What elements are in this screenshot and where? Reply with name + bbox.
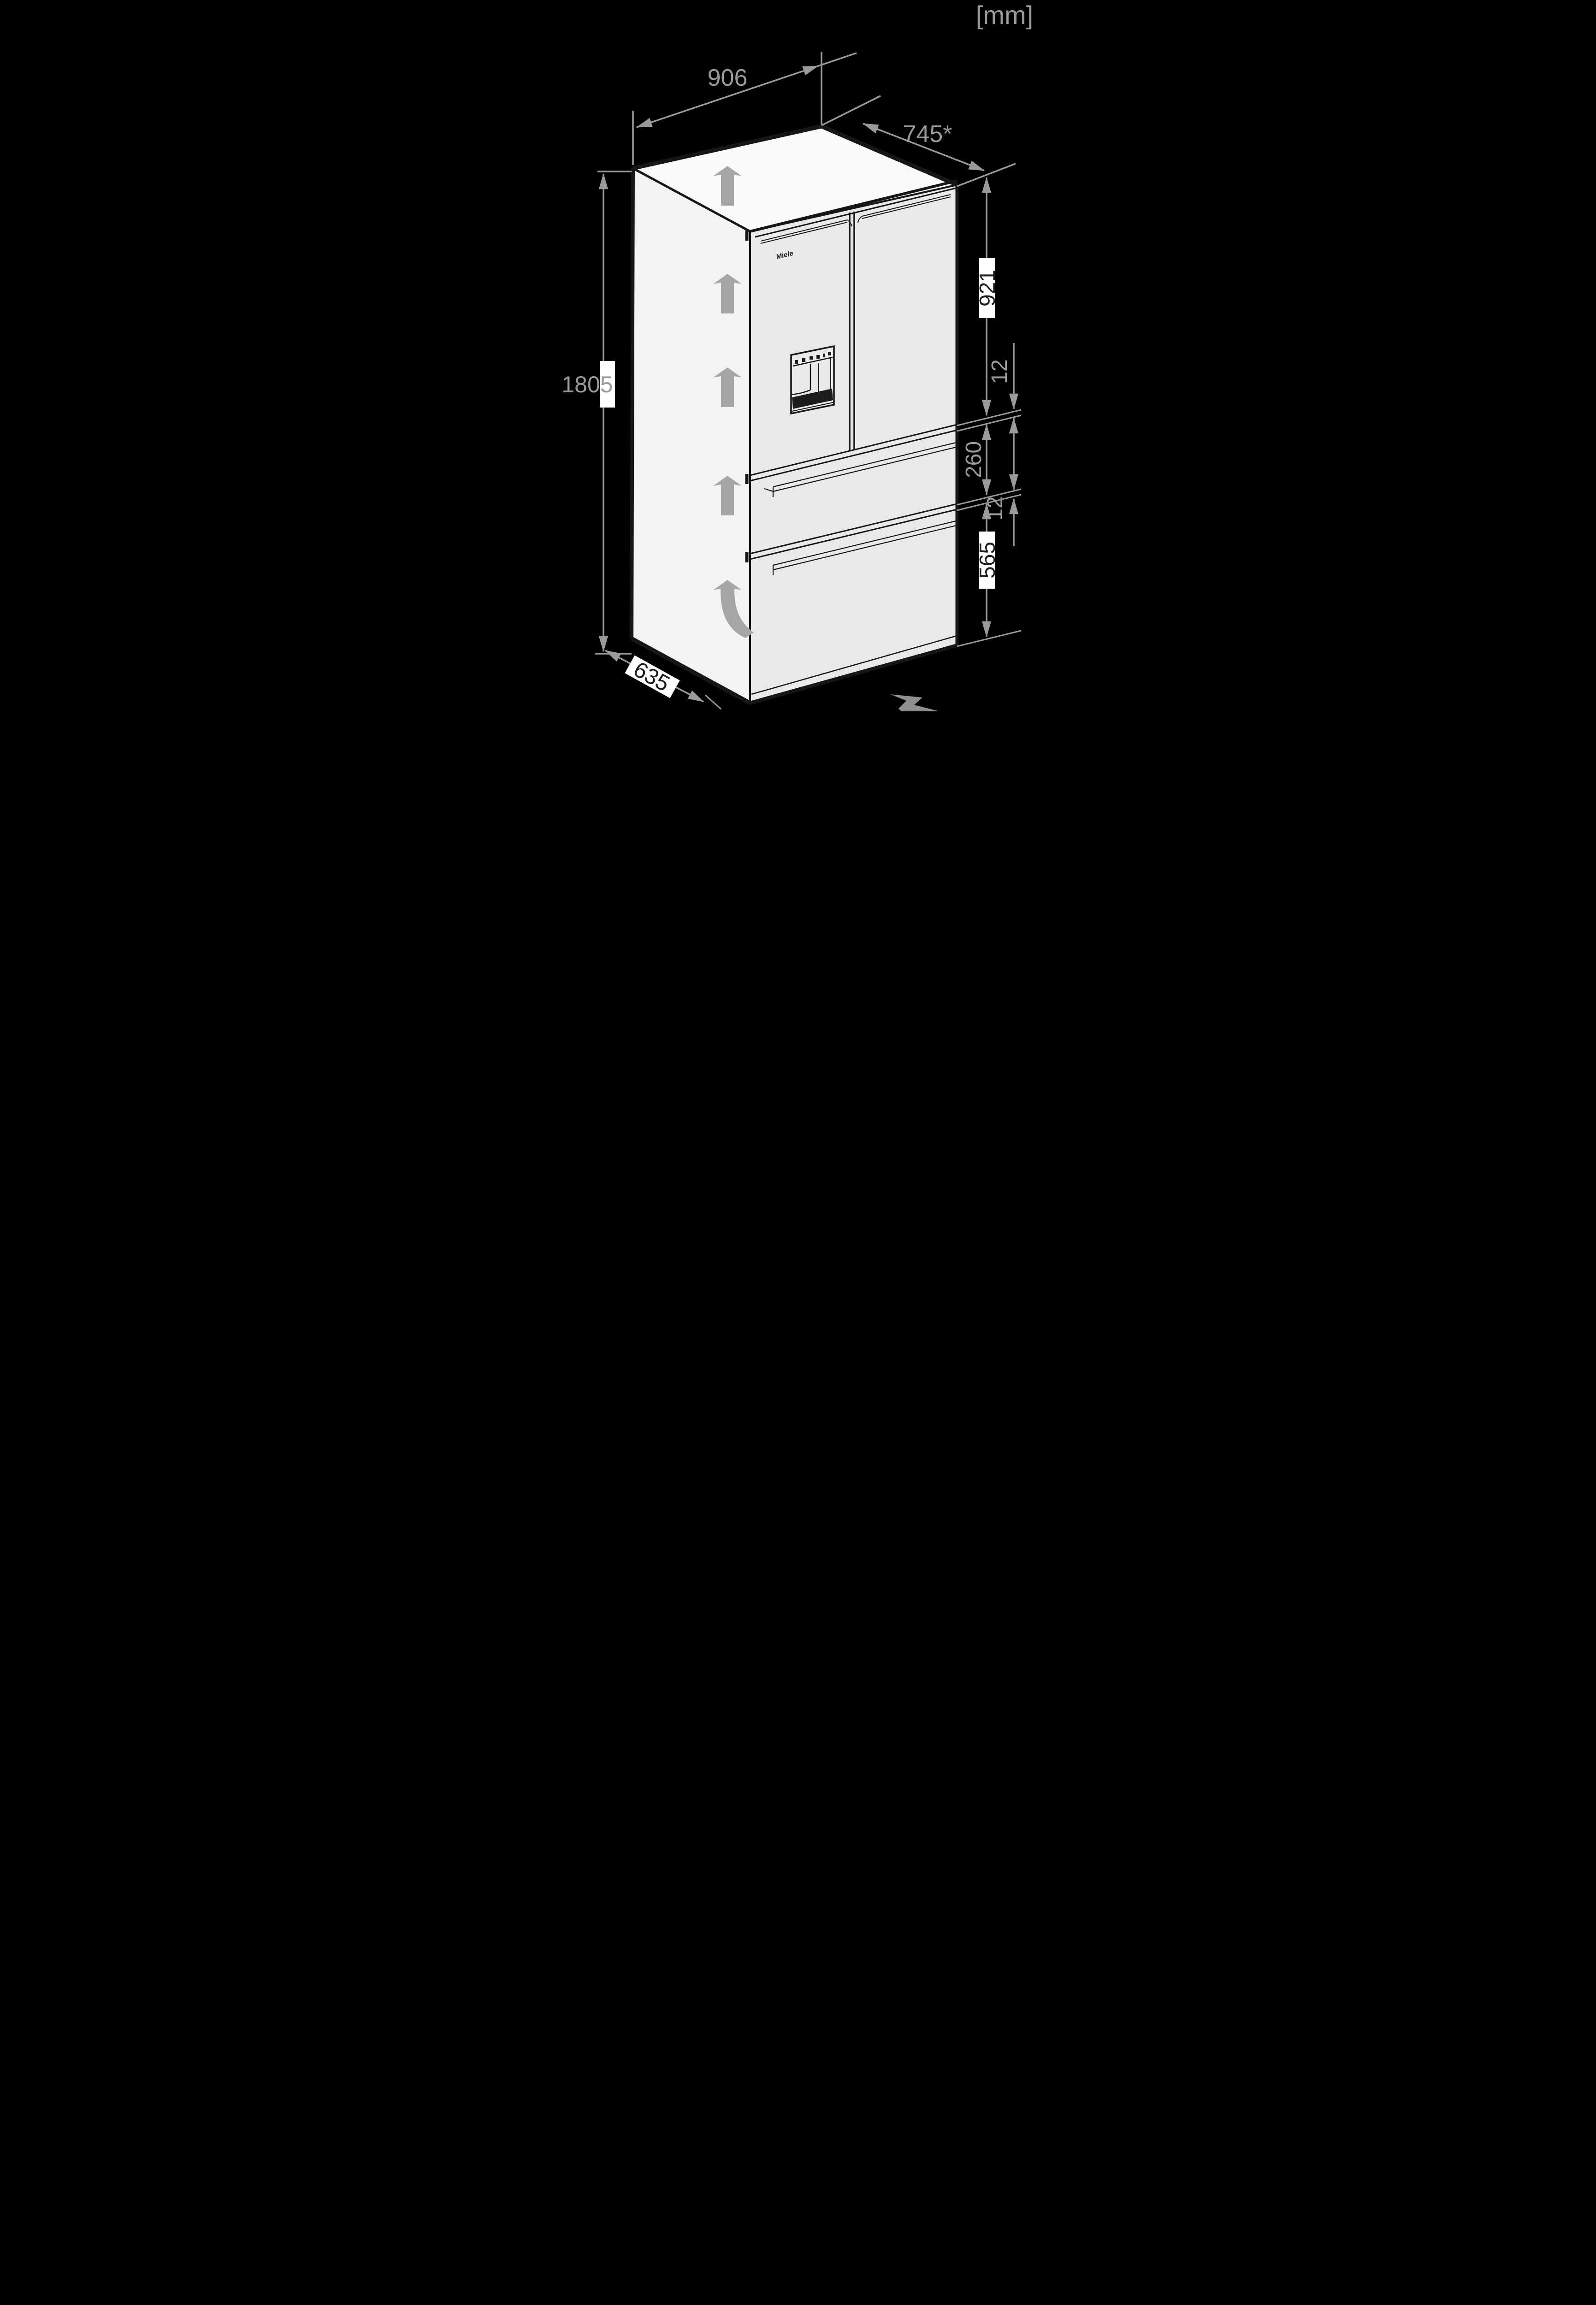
water-ice-dispenser: [791, 346, 834, 414]
unit-label: [mm]: [975, 0, 1033, 30]
dim-text-565: 565: [975, 542, 999, 579]
dim-text-12b: 12: [982, 496, 1007, 520]
dim-text-745: 745*: [903, 121, 952, 148]
edge-left-rear: [632, 168, 633, 638]
fridge-line-drawing: Miele: [632, 126, 957, 703]
dim-text-921: 921: [975, 270, 999, 307]
dim-text-12a: 12: [987, 359, 1011, 384]
dim-text-906: 906: [707, 65, 747, 91]
dim-text-1805: 1805: [562, 372, 613, 397]
dim-text-260: 260: [961, 441, 986, 478]
dimension-diagram: Miele: [558, 0, 1039, 711]
